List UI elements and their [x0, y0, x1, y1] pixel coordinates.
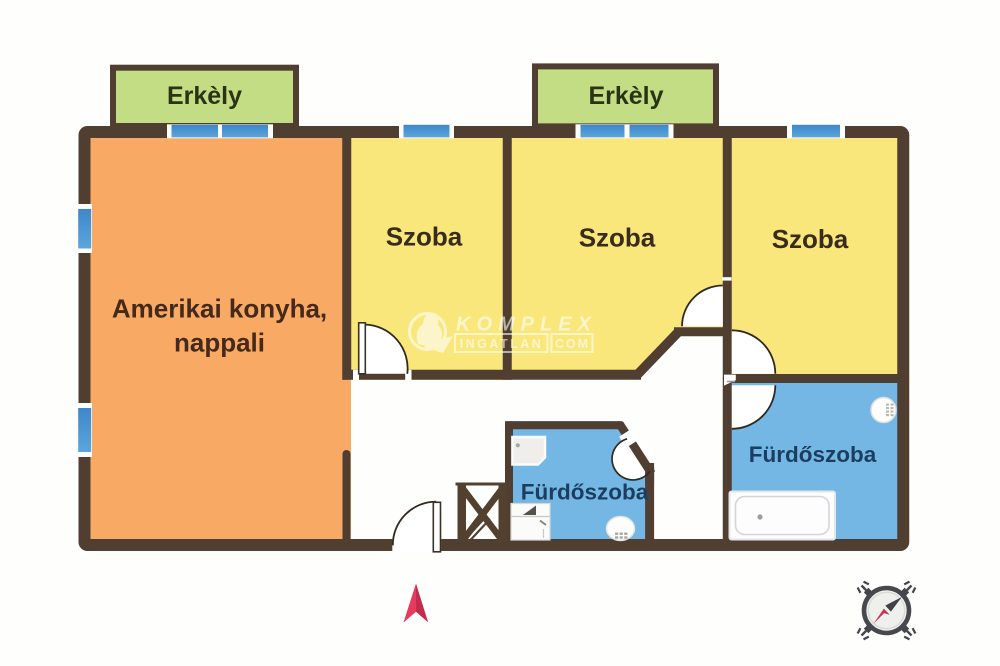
svg-text:Fürdőszoba: Fürdőszoba — [749, 442, 877, 467]
svg-text:KOMPLEX: KOMPLEX — [456, 314, 597, 336]
svg-text:Fürdőszoba: Fürdőszoba — [521, 480, 649, 505]
svg-text:Erkèly: Erkèly — [588, 82, 663, 110]
svg-text:Amerikai konyha,: Amerikai konyha, — [112, 294, 327, 324]
svg-text:Szoba: Szoba — [772, 224, 849, 254]
svg-text:Erkèly: Erkèly — [167, 82, 242, 110]
svg-text:Szoba: Szoba — [386, 222, 463, 252]
svg-text:Szoba: Szoba — [579, 223, 656, 253]
svg-text:INGATLAN: INGATLAN — [460, 337, 544, 351]
svg-text:COM: COM — [555, 337, 590, 351]
svg-text:nappali: nappali — [174, 328, 265, 358]
